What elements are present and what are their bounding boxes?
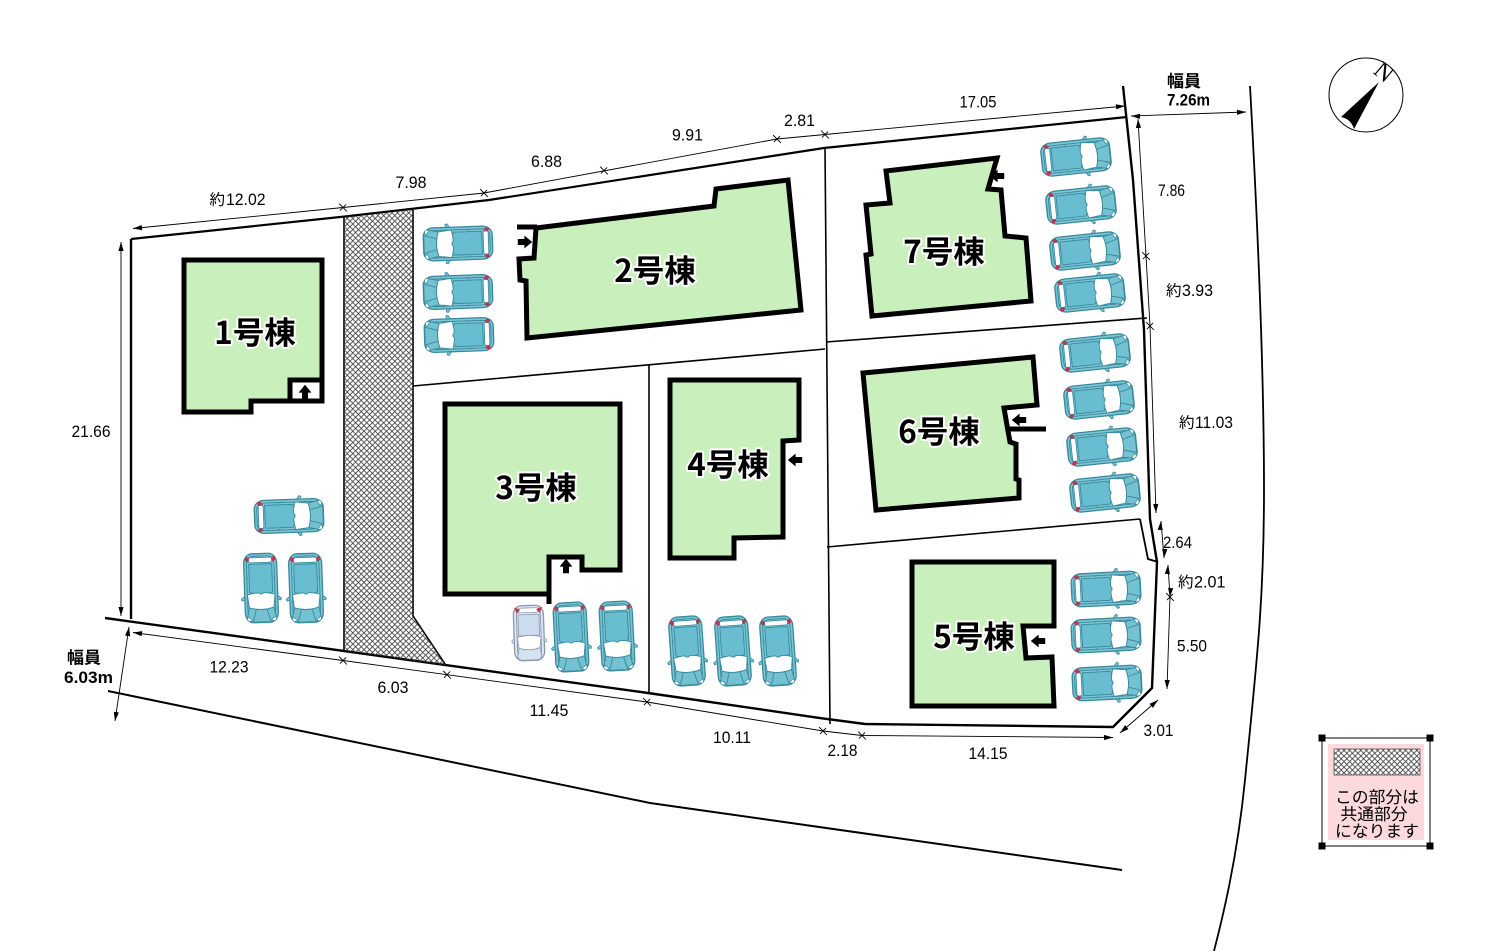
- svg-text:2.01: 2.01: [1194, 574, 1226, 592]
- svg-text:11.45: 11.45: [530, 702, 569, 720]
- svg-text:9.91: 9.91: [672, 127, 703, 145]
- svg-text:10.11: 10.11: [713, 729, 751, 747]
- svg-text:11.03: 11.03: [1195, 414, 1233, 432]
- svg-text:12.02: 12.02: [226, 191, 266, 209]
- svg-text:5.50: 5.50: [1177, 638, 1207, 656]
- svg-text:2.64: 2.64: [1163, 534, 1192, 552]
- svg-text:14.15: 14.15: [969, 745, 1008, 763]
- svg-text:3.01: 3.01: [1144, 722, 1174, 740]
- svg-text:6.88: 6.88: [531, 153, 562, 171]
- svg-text:7.98: 7.98: [396, 174, 427, 192]
- svg-text:3.93: 3.93: [1182, 282, 1213, 300]
- svg-text:2.18: 2.18: [828, 742, 858, 760]
- svg-text:21.66: 21.66: [72, 423, 111, 441]
- svg-text:6.03m: 6.03m: [64, 669, 113, 687]
- svg-text:6.03: 6.03: [378, 679, 409, 697]
- svg-text:7.86: 7.86: [1158, 182, 1185, 200]
- svg-text:7.26m: 7.26m: [1167, 92, 1210, 110]
- svg-text:17.05: 17.05: [960, 94, 997, 112]
- svg-text:12.23: 12.23: [210, 659, 249, 677]
- svg-text:2.81: 2.81: [784, 112, 815, 130]
